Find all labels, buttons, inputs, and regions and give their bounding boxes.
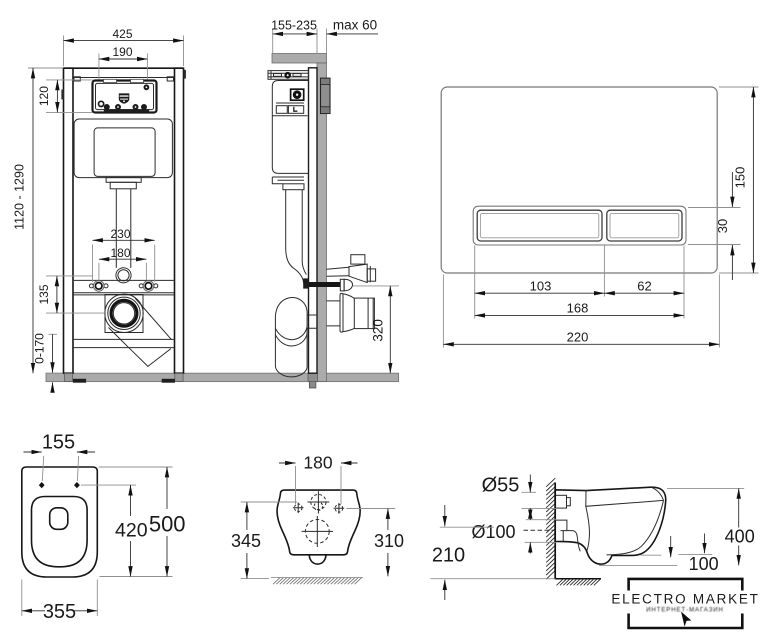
svg-text:500: 500 — [149, 512, 186, 537]
svg-text:425: 425 — [112, 27, 132, 41]
svg-text:0-170: 0-170 — [32, 333, 46, 364]
svg-text:103: 103 — [530, 278, 552, 293]
svg-text:220: 220 — [567, 329, 589, 344]
svg-text:155: 155 — [42, 432, 75, 454]
svg-text:190: 190 — [112, 45, 132, 59]
svg-text:150: 150 — [732, 167, 747, 189]
svg-text:30: 30 — [715, 219, 730, 233]
svg-text:120: 120 — [37, 86, 51, 106]
svg-text:Ø55: Ø55 — [482, 475, 520, 497]
svg-text:ИНТЕРНЕТ-МАГАЗИН: ИНТЕРНЕТ-МАГАЗИН — [646, 606, 724, 613]
svg-text:180: 180 — [303, 452, 332, 472]
svg-text:210: 210 — [432, 544, 465, 566]
svg-text:Ø100: Ø100 — [471, 522, 515, 542]
svg-text:345: 345 — [231, 531, 261, 551]
svg-text:135: 135 — [37, 284, 51, 304]
svg-text:ELECTRO MARKET: ELECTRO MARKET — [611, 591, 759, 606]
svg-text:400: 400 — [725, 527, 755, 547]
svg-text:max 60: max 60 — [333, 18, 377, 33]
svg-text:1120 - 1290: 1120 - 1290 — [13, 164, 27, 230]
svg-text:230: 230 — [110, 227, 130, 241]
svg-text:420: 420 — [115, 520, 148, 542]
svg-text:320: 320 — [371, 319, 386, 342]
svg-text:62: 62 — [637, 278, 651, 293]
svg-text:168: 168 — [567, 300, 589, 315]
svg-text:355: 355 — [43, 601, 76, 623]
svg-text:155-235: 155-235 — [271, 18, 317, 32]
svg-text:310: 310 — [374, 531, 404, 551]
svg-text:100: 100 — [689, 554, 719, 574]
svg-text:180: 180 — [110, 246, 130, 260]
